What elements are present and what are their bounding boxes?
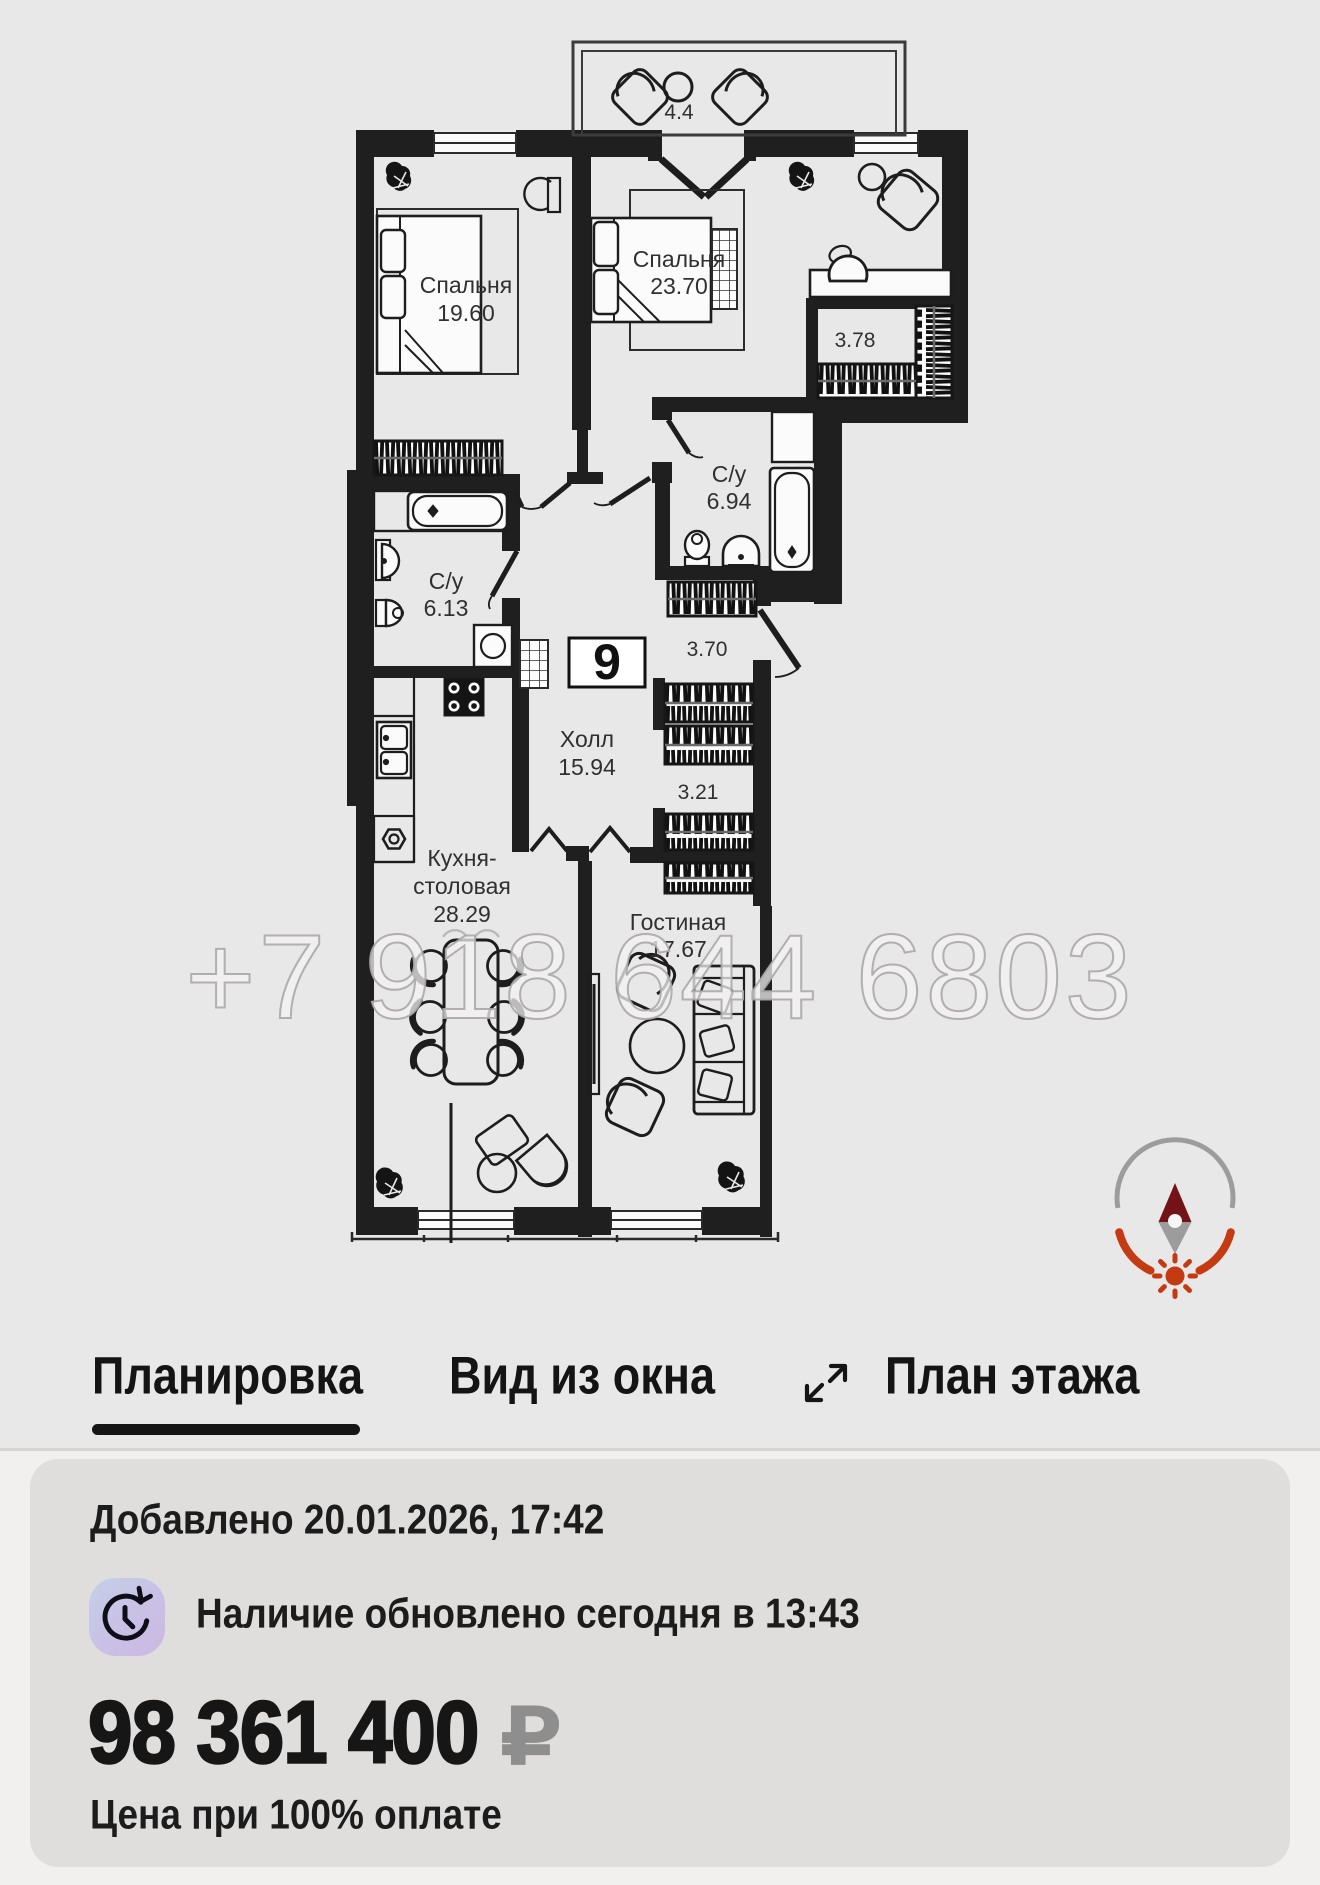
svg-text:23.70: 23.70: [650, 273, 708, 299]
svg-text:15.94: 15.94: [558, 754, 616, 780]
svg-text:Спальня: Спальня: [420, 272, 512, 298]
svg-text:6.94: 6.94: [707, 488, 752, 514]
svg-text:9: 9: [593, 634, 621, 690]
svg-text:С/у: С/у: [429, 568, 464, 594]
svg-text:3.21: 3.21: [678, 781, 719, 804]
svg-text:3.70: 3.70: [687, 638, 728, 661]
svg-text:Спальня: Спальня: [633, 246, 725, 272]
svg-text:4.4: 4.4: [664, 101, 694, 124]
svg-text:Кухня-: Кухня-: [427, 845, 496, 871]
svg-text:С/у: С/у: [712, 461, 747, 487]
svg-text:столовая: столовая: [413, 873, 511, 899]
svg-text:Холл: Холл: [560, 726, 614, 752]
svg-text:19.60: 19.60: [437, 300, 495, 326]
svg-text:+7 918 644 6803: +7 918 644 6803: [185, 910, 1134, 1044]
svg-text:3.78: 3.78: [835, 329, 876, 352]
svg-text:6.13: 6.13: [424, 595, 469, 621]
